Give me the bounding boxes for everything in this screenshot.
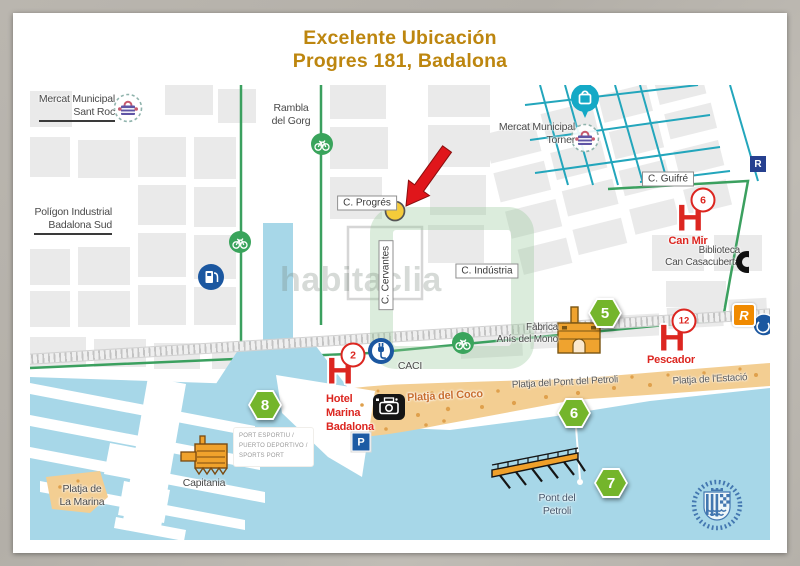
hexagon-marker-8: 8: [248, 390, 282, 420]
map-canvas: habitaclia: [30, 85, 770, 540]
bike-icon: [311, 133, 333, 155]
hospital-badge-hotel-marina: 2: [341, 343, 366, 368]
hexagon-marker-6: 6: [557, 398, 591, 428]
flyer-page: Excelente Ubicación Progres 181, Badalon…: [13, 13, 787, 553]
street-box-progres: C. Progrés: [337, 196, 397, 211]
street-box-industria: C. Indústria: [455, 264, 518, 279]
label-fabrica-anis: FàbricaAnís del Mono: [497, 322, 558, 346]
label-can-mir: Can Mir: [669, 235, 708, 248]
hexagon-marker-7: 7: [594, 468, 628, 498]
page-title-line2: Progres 181, Badalona: [13, 50, 787, 73]
capitania-icon: [181, 436, 227, 474]
label-caci: CACI: [398, 360, 422, 373]
fuel-station-icon: [198, 264, 224, 290]
location-arrow: [406, 146, 452, 206]
label-mercat-torner: Mercat MunicipalTorner: [499, 121, 575, 146]
photo-frame: Excelente Ubicación Progres 181, Badalon…: [0, 0, 800, 566]
label-poligon-industrial: Polígon IndustrialBadalona Sud: [34, 206, 112, 235]
street-box-guifre: C. Guifré: [642, 172, 694, 187]
label-rambla-del-gorg: Rambladel Gorg: [272, 102, 311, 127]
market-icon-torner: [572, 125, 599, 152]
hospital-badge-pescador: 12: [672, 309, 697, 334]
bike-icon: [229, 231, 251, 253]
market-icon-sant-roc: [115, 95, 142, 122]
ev-charging-icon: [368, 338, 394, 364]
street-box-cervantes: C. Cervantes: [379, 240, 394, 310]
bike-icon: [452, 332, 474, 354]
shop-pin-icon: [571, 85, 599, 118]
port-label-card: PORT ESPORTIU / PUERTO DEPORTIVO / SPORT…: [233, 427, 314, 467]
renfe-r-icon: R: [732, 303, 756, 327]
biblioteca-icon: [736, 251, 749, 275]
map-icons: [30, 85, 770, 540]
label-capitania: Capitania: [183, 477, 226, 490]
label-platja-marina: Platja deLa Marina: [60, 483, 105, 508]
label-pescador: Pescador: [647, 354, 695, 367]
parking-icon: P: [352, 433, 371, 452]
hexagon-marker-5: 5: [588, 298, 622, 328]
petroli-pier-icon: [492, 448, 585, 488]
label-biblioteca: BibliotecaCan Casacuberta: [665, 245, 740, 269]
rodalies-r-square: R: [750, 156, 766, 172]
label-hotel-marina: Hotel Marina Badalona: [326, 393, 374, 434]
hospital-badge-can-mir: 6: [691, 188, 716, 213]
page-title-line1: Excelente Ubicación: [13, 27, 787, 50]
camera-icon: [373, 394, 405, 420]
badalona-crest-icon: [694, 482, 740, 528]
label-mercat-sant-roc: Mercat MunicipalSant Roc: [39, 93, 115, 122]
label-pont-petroli: Pont delPetroli: [539, 492, 576, 517]
